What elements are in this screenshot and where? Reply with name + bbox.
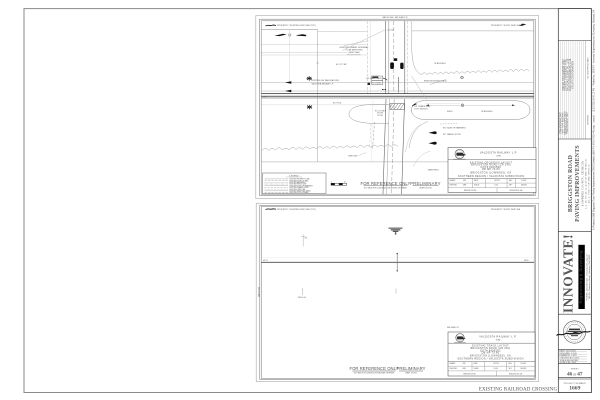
svg-text:JMS: JMS: [463, 180, 466, 182]
svg-text:10/27/20: 10/27/20: [493, 363, 499, 365]
svg-text:EX. 24" CMP: EX. 24" CMP: [336, 64, 347, 66]
svg-text:& FIELD BK: 1669: & FIELD BK: 1669: [560, 362, 577, 364]
svg-text:SOUTHERN REGION / VALDOSTA SUB: SOUTHERN REGION / VALDOSTA SUBDIVISION: [457, 358, 523, 361]
svg-text:PAVING IMPROVEMENTS: PAVING IMPROVEMENTS: [575, 145, 581, 222]
svg-text:DOT# 840659C: DOT# 840659C: [415, 108, 429, 110]
svg-text:Engineering & Surveying: Engineering & Surveying: [578, 250, 583, 303]
svg-text:MATCH LINE: MATCH LINE: [257, 286, 260, 297]
svg-text:BRIGGSTON ROAD: BRIGGSTON ROAD: [568, 155, 574, 212]
svg-text:EXISTING PROPERTY LINE: EXISTING PROPERTY LINE: [290, 179, 310, 181]
svg-text:BRIGGSTON RD: BRIGGSTON RD: [463, 373, 476, 375]
svg-text:SHEET: SHEET: [571, 369, 580, 371]
svg-text:1"=40': 1"=40': [494, 185, 499, 187]
svg-text:EXISTING TREE LINE: EXISTING TREE LINE: [290, 189, 306, 191]
svg-text:FOR REFERENCE ONLY: FOR REFERENCE ONLY: [350, 366, 399, 371]
svg-text:& L.L. 79 & 77 OF THE 11TH L.D: & L.L. 79 & 77 OF THE 11TH L.D.: [587, 163, 590, 203]
svg-text:CR 240: CR 240: [377, 115, 383, 117]
svg-text:VALDOSTA RAILWAY L.P.: VALDOSTA RAILWAY L.P.: [312, 83, 334, 86]
svg-text:OPEN FIELD: OPEN FIELD: [434, 63, 446, 65]
svg-text:UTILITY COORDINATION: UTILITY COORDINATION: [571, 61, 574, 89]
svg-text:TREE FIELD: TREE FIELD: [428, 170, 440, 172]
svg-text:FOR REFERENCE ONLY: FOR REFERENCE ONLY: [361, 181, 411, 186]
svg-text:VALDOSTA RAILWAY L.P.: VALDOSTA RAILWAY L.P.: [480, 151, 518, 155]
svg-text:(SEE PLAN): (SEE PLAN): [348, 51, 359, 54]
svg-text:BRIGGSTON RD: BRIGGSTON RD: [464, 190, 477, 192]
svg-text:K:\Projects\1669 Briggston Roa: K:\Projects\1669 Briggston Road Paving I…: [592, 9, 595, 230]
svg-text:1669: 1669: [569, 386, 580, 392]
svg-text:840659C: 840659C: [521, 368, 528, 370]
svg-text:VALDOSTA RAILWAY L.P.: VALDOSTA RAILWAY L.P.: [479, 334, 517, 338]
svg-text:EX. EDGE OF PAVEMENT: EX. EDGE OF PAVEMENT: [443, 127, 467, 130]
svg-text:(VR): (VR): [496, 156, 501, 158]
svg-text:PROPERTY / EXIST. R/W LINE: PROPERTY / EXIST. R/W LINE: [491, 209, 521, 211]
svg-text:TREE LINE: TREE LINE: [348, 156, 358, 158]
svg-text:CR 240: CR 240: [387, 30, 393, 32]
svg-text:PH/FAX: 229-245-0111 - www.i: PH/FAX: 229-245-0111 - www.innovate-eng.…: [585, 253, 588, 300]
svg-text:EX. MAIN TRACK: EX. MAIN TRACK: [367, 77, 383, 80]
svg-text:(VR): (VR): [496, 339, 501, 341]
svg-text:EXISTING FENCE LINE: EXISTING FENCE LINE: [290, 184, 307, 186]
svg-text:MP 80: MP 80: [524, 260, 529, 262]
svg-text:MP 79: MP 79: [263, 260, 268, 262]
svg-text:MATCH LINE - SEE SHEET 45: MATCH LINE - SEE SHEET 45: [383, 16, 408, 19]
svg-text:10/27/20: 10/27/20: [494, 180, 500, 182]
svg-text:REVISIONS: REVISIONS: [588, 114, 590, 125]
svg-text:CHECKED:: CHECKED:: [450, 368, 458, 370]
svg-text:REV:: REV:: [509, 363, 513, 365]
svg-text:EX. TRAFFIC FLOW: EX. TRAFFIC FLOW: [443, 133, 461, 136]
svg-text:DRB: DRB: [463, 368, 466, 370]
svg-text:1"=100': 1"=100': [493, 368, 499, 370]
svg-text:11-0348: 11-0348: [521, 363, 527, 365]
svg-text:PROPERTY / EXISTING R/W LINE (: PROPERTY / EXISTING R/W LINE (TYP.): [277, 25, 316, 27]
svg-text:2814 N. Patterson Street, Vald: 2814 N. Patterson Street, Valdosta, GA 3…: [588, 254, 591, 299]
svg-text:NO. DESCRIPTION DATE: NO. DESCRIPTION DATE: [587, 57, 590, 79]
svg-text:SOUTHERN REGION / VALDOSTA SUB: SOUTHERN REGION / VALDOSTA SUBDIVISION: [458, 175, 524, 178]
svg-text:11-0347: 11-0347: [521, 180, 527, 182]
svg-text:REV:: REV:: [509, 180, 513, 182]
svg-text:EX. POLE: EX. POLE: [333, 103, 342, 105]
svg-text:PROPERTY / EXIST. R/W LINE: PROPERTY / EXIST. R/W LINE: [491, 25, 521, 27]
svg-text:STA 10+00: STA 10+00: [298, 296, 306, 299]
svg-text:DRB: DRB: [463, 185, 466, 187]
svg-text:FIELD: FIELD: [447, 111, 453, 113]
svg-text:SHT:: SHT:: [509, 185, 513, 187]
svg-text:INNOVATE!: INNOVATE!: [560, 234, 575, 313]
svg-text:JMS: JMS: [463, 363, 466, 365]
svg-text:EXISTING RAILROAD CROSSING: EXISTING RAILROAD CROSSING: [479, 388, 558, 393]
svg-text:PRELIMINARY: PRELIMINARY: [397, 366, 426, 371]
svg-text:PROJECT NUMBER: PROJECT NUMBER: [564, 383, 586, 385]
svg-text:EXISTING 100' RAILROAD R/W: EXISTING 100' RAILROAD R/W: [312, 79, 339, 82]
svg-text:CHECKED:: CHECKED:: [450, 185, 458, 187]
svg-text:PROPERTY / EXISTING R/W LINE (: PROPERTY / EXISTING R/W LINE (TYP.): [277, 209, 316, 211]
svg-text:PRELIMINARY: PRELIMINARY: [410, 181, 441, 186]
svg-text:SHT:: SHT:: [509, 368, 513, 370]
svg-text:PRELIMINARY SET: PRELIMINARY SET: [566, 112, 569, 134]
svg-text:SEE SHEET 47: SEE SHEET 47: [447, 327, 459, 329]
svg-text:840659C: 840659C: [521, 185, 528, 187]
svg-text:OPEN FIELD: OPEN FIELD: [481, 111, 493, 113]
